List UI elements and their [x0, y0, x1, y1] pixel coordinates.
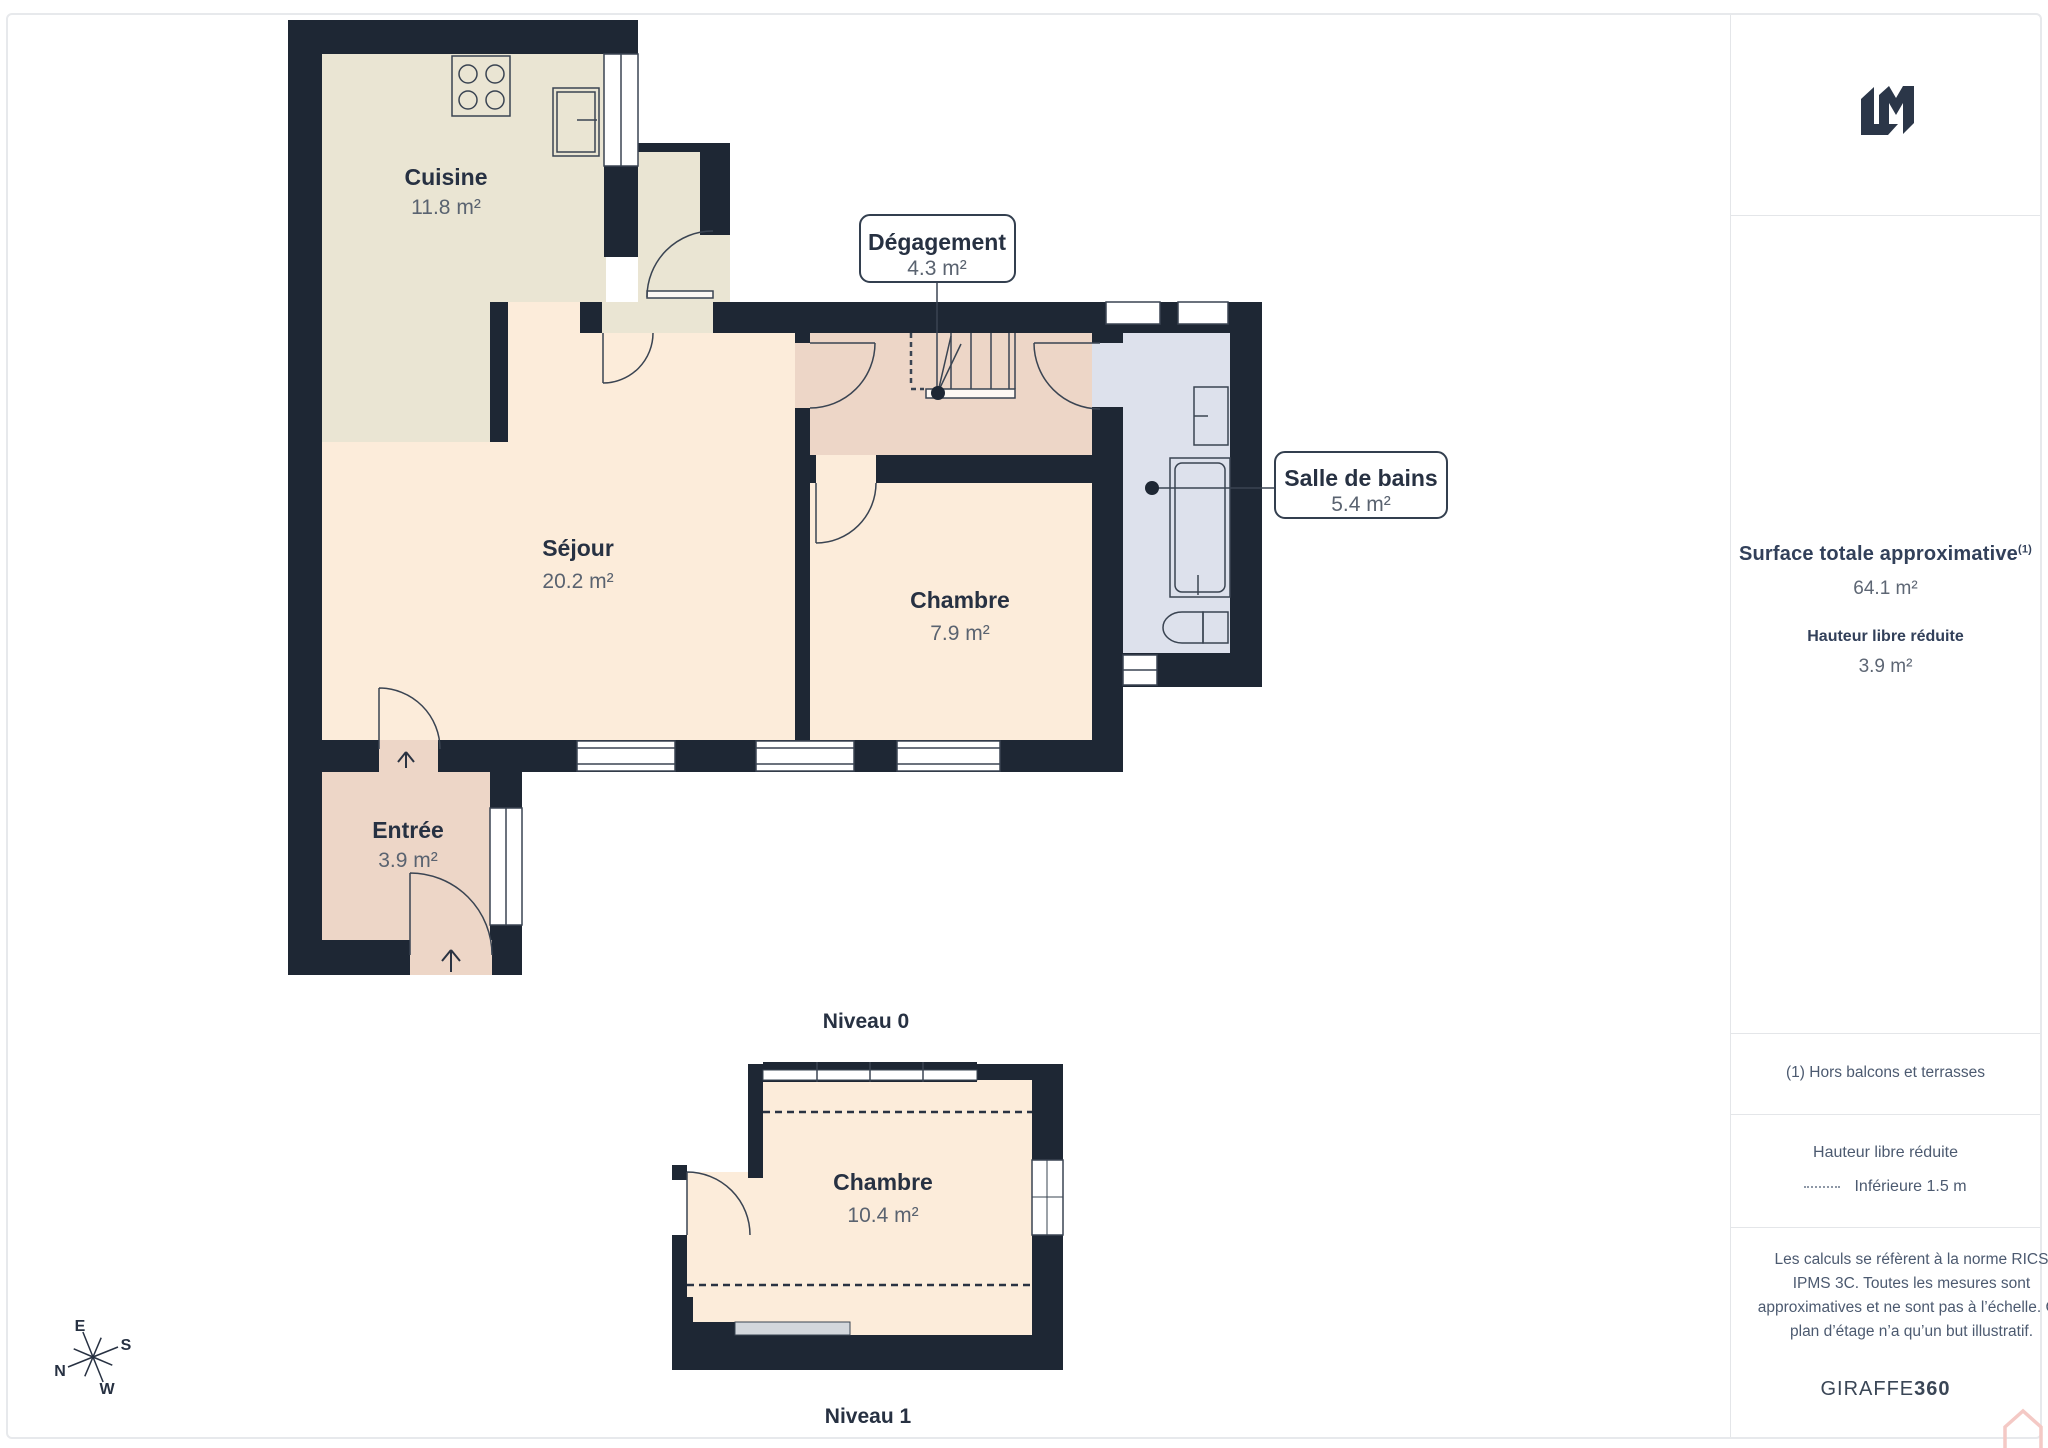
room-area: 3.9 m² — [378, 849, 438, 872]
room-area: 11.8 m² — [411, 196, 481, 219]
compass-s: S — [121, 1337, 132, 1354]
sidebar-separator — [1730, 13, 1731, 1437]
brand-logo — [1857, 83, 1918, 137]
room-label: Entrée — [372, 817, 444, 843]
room-area: 10.4 m² — [847, 1204, 918, 1227]
window-sill — [735, 1322, 850, 1335]
legal-disclaimer: Les calculs se réfèrent à la norme RICS … — [1731, 1248, 2048, 1344]
window — [1178, 302, 1228, 324]
room-area: 7.9 m² — [930, 622, 990, 645]
window — [756, 741, 854, 771]
nook-floor — [638, 152, 700, 302]
room-label: Séjour — [542, 535, 614, 561]
brand-number: 360 — [1914, 1378, 1950, 1400]
room-label: Dégagement — [868, 229, 1006, 255]
divider — [1731, 1114, 2040, 1115]
room-label: Chambre — [910, 587, 1010, 613]
divider — [1731, 215, 2040, 216]
brand-name: GIRAFFE360 — [1731, 1378, 2040, 1401]
reduced-height-title: Hauteur libre réduite — [1731, 628, 2040, 646]
surface-total-value: 64.1 m² — [1731, 578, 2040, 600]
level-label: Niveau 0 — [823, 1010, 909, 1033]
floorplan-drawing: Dégagement 4.3 m² Salle de bains 5.4 m² … — [0, 0, 1731, 1448]
compass-n: N — [54, 1363, 66, 1380]
room-label: Cuisine — [404, 164, 487, 190]
compass-e: E — [75, 1318, 86, 1335]
room-area: 20.2 m² — [542, 570, 613, 593]
legend-label: Inférieure 1.5 m — [1854, 1178, 1966, 1196]
room-area: 4.3 m² — [907, 257, 967, 280]
footnote: (1) Hors balcons et terrasses — [1731, 1064, 2040, 1082]
surface-total-title: Surface totale approximative(1) — [1731, 543, 2040, 566]
legend-row: Inférieure 1.5 m — [1731, 1178, 2040, 1196]
compass-icon: E S N W — [54, 1318, 131, 1398]
room-label: Chambre — [833, 1169, 933, 1195]
salle-de-bains-floor — [1123, 333, 1230, 653]
window — [577, 741, 675, 771]
brand-text: GIRAFFE — [1820, 1378, 1914, 1400]
compass-w: W — [99, 1381, 115, 1398]
floorplan-page: { "floorplan": { "levels": [ { "name": "… — [0, 0, 2048, 1448]
reduced-height-value: 3.9 m² — [1731, 656, 2040, 678]
dashed-line-icon — [1804, 1186, 1840, 1188]
legend-title: Hauteur libre réduite — [1731, 1144, 2040, 1162]
room-area: 5.4 m² — [1331, 493, 1391, 516]
window — [897, 741, 1000, 771]
window — [1106, 302, 1160, 324]
divider — [1731, 1227, 2040, 1228]
surface-total-text: Surface totale approximative — [1739, 543, 2018, 565]
divider — [1731, 1033, 2040, 1034]
house-icon — [1998, 1404, 2048, 1448]
level-label: Niveau 1 — [825, 1405, 912, 1428]
surface-total-footnote-ref: (1) — [2018, 543, 2032, 555]
room-label: Salle de bains — [1284, 465, 1437, 491]
niveau1-plan: Chambre 10.4 m² Niveau 1 — [672, 1062, 1063, 1428]
